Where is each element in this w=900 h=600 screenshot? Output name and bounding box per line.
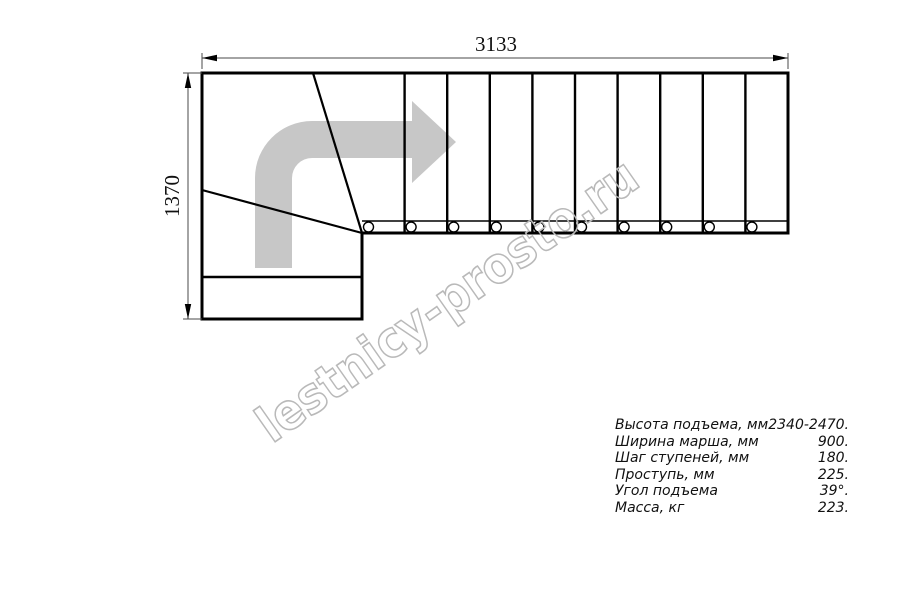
spec-row-mass: Масса, кг 223. [615, 500, 849, 517]
spec-row-height: Высота подъема, мм 2340-2470. [615, 417, 849, 434]
width-dimension-label: 3133 [475, 32, 517, 56]
direction-arrow-icon [255, 101, 456, 268]
spec-label: Шаг ступеней, мм [615, 450, 749, 467]
staircase-drawing-page: 3133 1370 lestnicy-prosto.ru Высота подъ… [0, 0, 900, 600]
height-dimension: 1370 [160, 73, 202, 319]
spec-label: Проступь, мм [615, 467, 715, 484]
dim-arrow-down-icon [185, 304, 191, 319]
spec-row-step-rise: Шаг ступеней, мм 180. [615, 450, 849, 467]
spec-table: Высота подъема, мм 2340-2470. Ширина мар… [615, 417, 849, 517]
spec-value: 39°. [820, 483, 849, 500]
width-dimension: 3133 [202, 32, 788, 69]
spec-value: 2340-2470. [768, 417, 849, 434]
spec-label: Угол подъема [615, 483, 718, 500]
spec-value: 225. [818, 467, 849, 484]
spec-value: 900. [818, 434, 849, 451]
spec-row-flight-width: Ширина марша, мм 900. [615, 434, 849, 451]
spec-label: Масса, кг [615, 500, 684, 517]
spec-label: Высота подъема, мм [615, 417, 768, 434]
height-dimension-label: 1370 [160, 175, 184, 217]
spec-value: 223. [818, 500, 849, 517]
dim-arrow-up-icon [185, 73, 191, 88]
spec-value: 180. [818, 450, 849, 467]
spec-label: Ширина марша, мм [615, 434, 759, 451]
spec-row-angle: Угол подъема 39°. [615, 483, 849, 500]
dim-arrow-left-icon [202, 55, 217, 61]
dim-arrow-right-icon [773, 55, 788, 61]
spec-row-tread: Проступь, мм 225. [615, 467, 849, 484]
